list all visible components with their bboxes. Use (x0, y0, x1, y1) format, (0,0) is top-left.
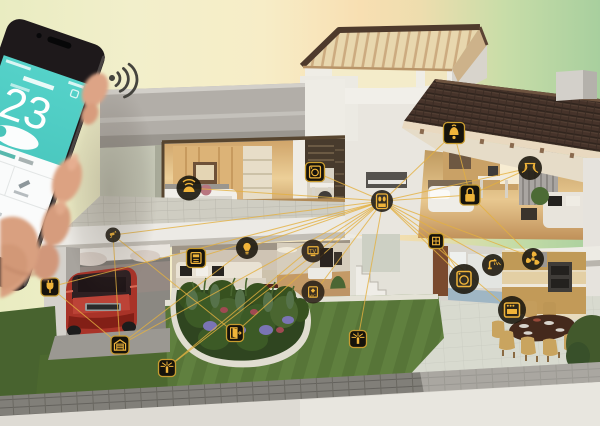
svg-text:TV: TV (309, 249, 316, 255)
svg-text:WC: WC (309, 293, 316, 298)
